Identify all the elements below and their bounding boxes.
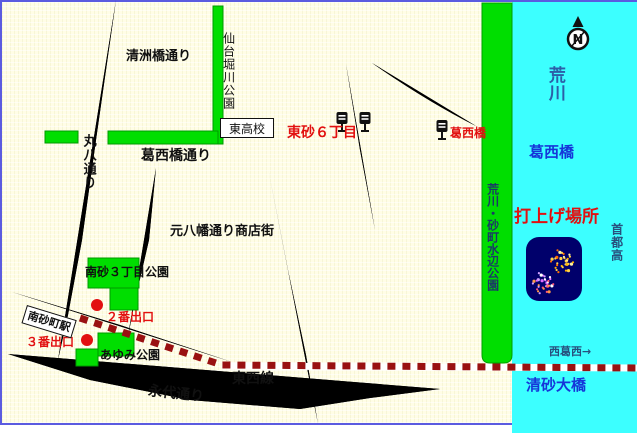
higashi-highschool-box: 東高校 (220, 118, 274, 138)
label-tozai-line: 東西線 (232, 372, 274, 387)
label-mizube-park: 荒川・砂町水辺公園 (486, 183, 499, 291)
label-higashisuna-6chome: 東砂６丁目 (287, 126, 357, 141)
exit2-dot (91, 299, 103, 311)
label-minamisuna-3chome-park: 南砂３丁目公園 (85, 266, 169, 279)
label-kasaibashi-bridge: 葛西橋 (529, 145, 574, 161)
label-exit-3: ３番出口 (26, 336, 74, 349)
label-nishikasai-arrow: 西葛西→ (549, 346, 591, 358)
label-kasaibashi-busstop: 葛西橋 (450, 127, 486, 140)
label-kiyosubashi-dori: 清洲橋通り (126, 50, 191, 64)
label-kasaibashi-dori: 葛西橋通り (141, 149, 211, 164)
label-maruhachi-dori: 丸八通り (81, 134, 95, 190)
label-exit-2: ２番出口 (106, 311, 154, 324)
label-launch-site: 打上げ場所 (514, 209, 599, 227)
label-sendaibori-park: 仙台堀川公園 (222, 32, 235, 110)
label-kiyosuna-ohashi: 清砂大橋 (526, 378, 586, 394)
label-arakawa-river: 荒川 (545, 66, 563, 102)
exit3-dot (81, 334, 93, 346)
bus-stop-icon (360, 112, 371, 132)
label-higashi-highschool: 東高校 (229, 120, 265, 137)
map-canvas: N 清洲橋通り 仙台堀川公園 東高校 東砂６丁目 葛西橋 荒川 葛西橋 葛西橋通… (0, 0, 640, 440)
bus-stop-icon (437, 120, 448, 140)
compass-n-letter: N (573, 33, 584, 48)
label-ayumi-park: あゆみ公園 (100, 349, 160, 362)
label-shutoko: 首都高 (610, 223, 623, 262)
fireworks-icon (526, 237, 582, 301)
label-motohachiman-shotengai: 元八幡通り商店街 (170, 225, 274, 239)
